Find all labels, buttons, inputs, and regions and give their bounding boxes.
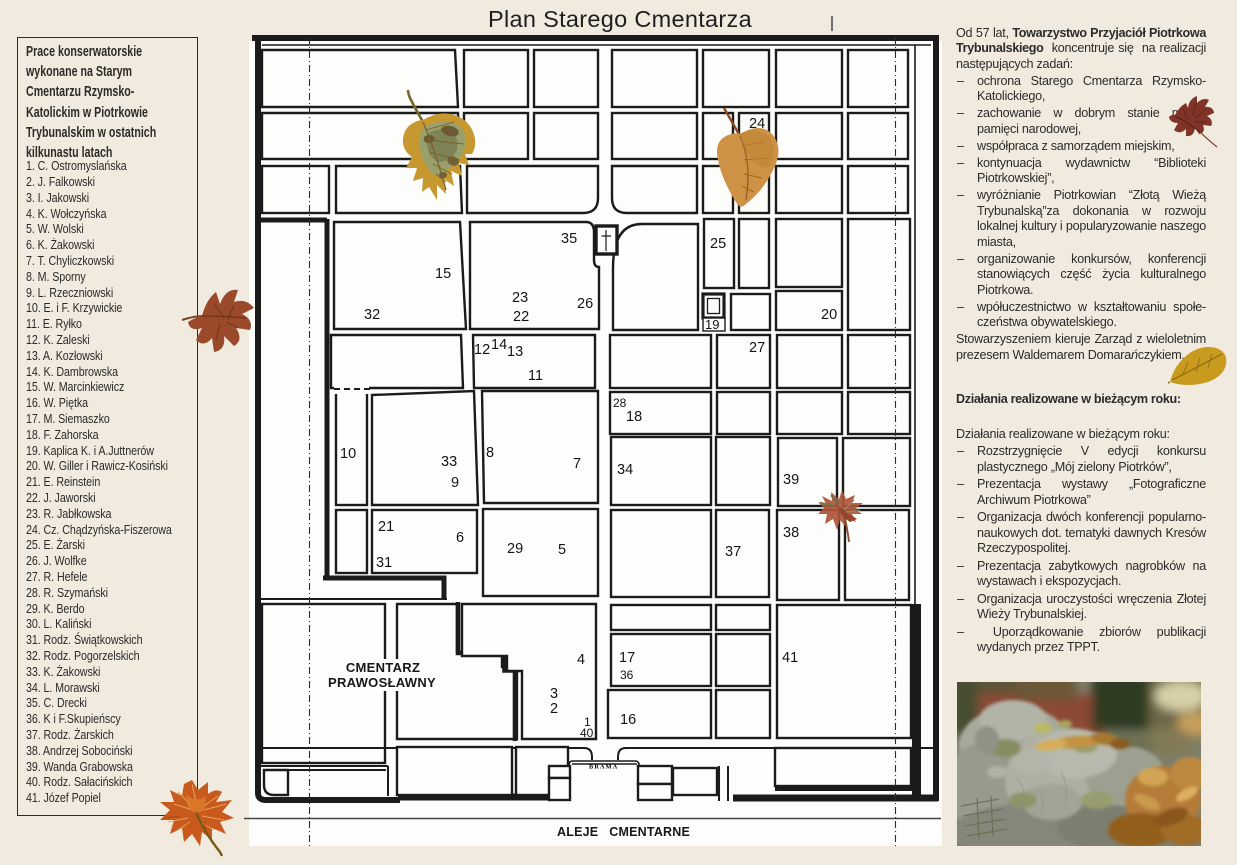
svg-text:ALEJE CMENTARNE: ALEJE CMENTARNE	[557, 825, 690, 839]
svg-text:37: 37	[725, 544, 741, 560]
svg-text:10: 10	[340, 446, 356, 462]
svg-text:14: 14	[491, 337, 507, 353]
svg-text:28: 28	[613, 396, 627, 410]
svg-text:6: 6	[456, 530, 464, 546]
svg-text:21: 21	[378, 519, 394, 535]
svg-text:40: 40	[580, 726, 594, 740]
svg-text:25: 25	[710, 236, 726, 252]
svg-text:8: 8	[486, 445, 494, 461]
svg-text:29: 29	[507, 541, 523, 557]
svg-text:3: 3	[550, 686, 558, 702]
svg-text:32: 32	[364, 307, 380, 323]
svg-text:2: 2	[550, 701, 558, 717]
svg-text:12: 12	[474, 342, 490, 358]
svg-text:33: 33	[441, 454, 457, 470]
svg-text:38: 38	[783, 525, 799, 541]
svg-text:16: 16	[620, 712, 636, 728]
svg-text:34: 34	[617, 462, 633, 478]
svg-text:BRAMA: BRAMA	[589, 764, 618, 771]
svg-text:23: 23	[512, 290, 528, 306]
svg-text:18: 18	[626, 409, 642, 425]
svg-text:39: 39	[783, 472, 799, 488]
svg-text:31: 31	[376, 555, 392, 571]
svg-text:22: 22	[513, 309, 529, 325]
svg-text:35: 35	[561, 231, 577, 247]
svg-text:9: 9	[451, 475, 459, 491]
svg-text:26: 26	[577, 296, 593, 312]
svg-text:36: 36	[620, 668, 634, 682]
svg-text:41: 41	[782, 650, 798, 666]
svg-text:4: 4	[577, 652, 585, 668]
svg-text:27: 27	[749, 340, 765, 356]
svg-text:7: 7	[573, 456, 581, 472]
svg-text:5: 5	[558, 542, 566, 558]
svg-text:13: 13	[507, 344, 523, 360]
svg-text:20: 20	[821, 307, 837, 323]
svg-text:PRAWOSŁAWNY: PRAWOSŁAWNY	[328, 675, 436, 690]
svg-text:19: 19	[705, 317, 719, 332]
svg-text:15: 15	[435, 266, 451, 282]
svg-text:CMENTARZ: CMENTARZ	[346, 660, 420, 675]
svg-text:17: 17	[619, 650, 635, 666]
svg-text:11: 11	[528, 368, 543, 384]
